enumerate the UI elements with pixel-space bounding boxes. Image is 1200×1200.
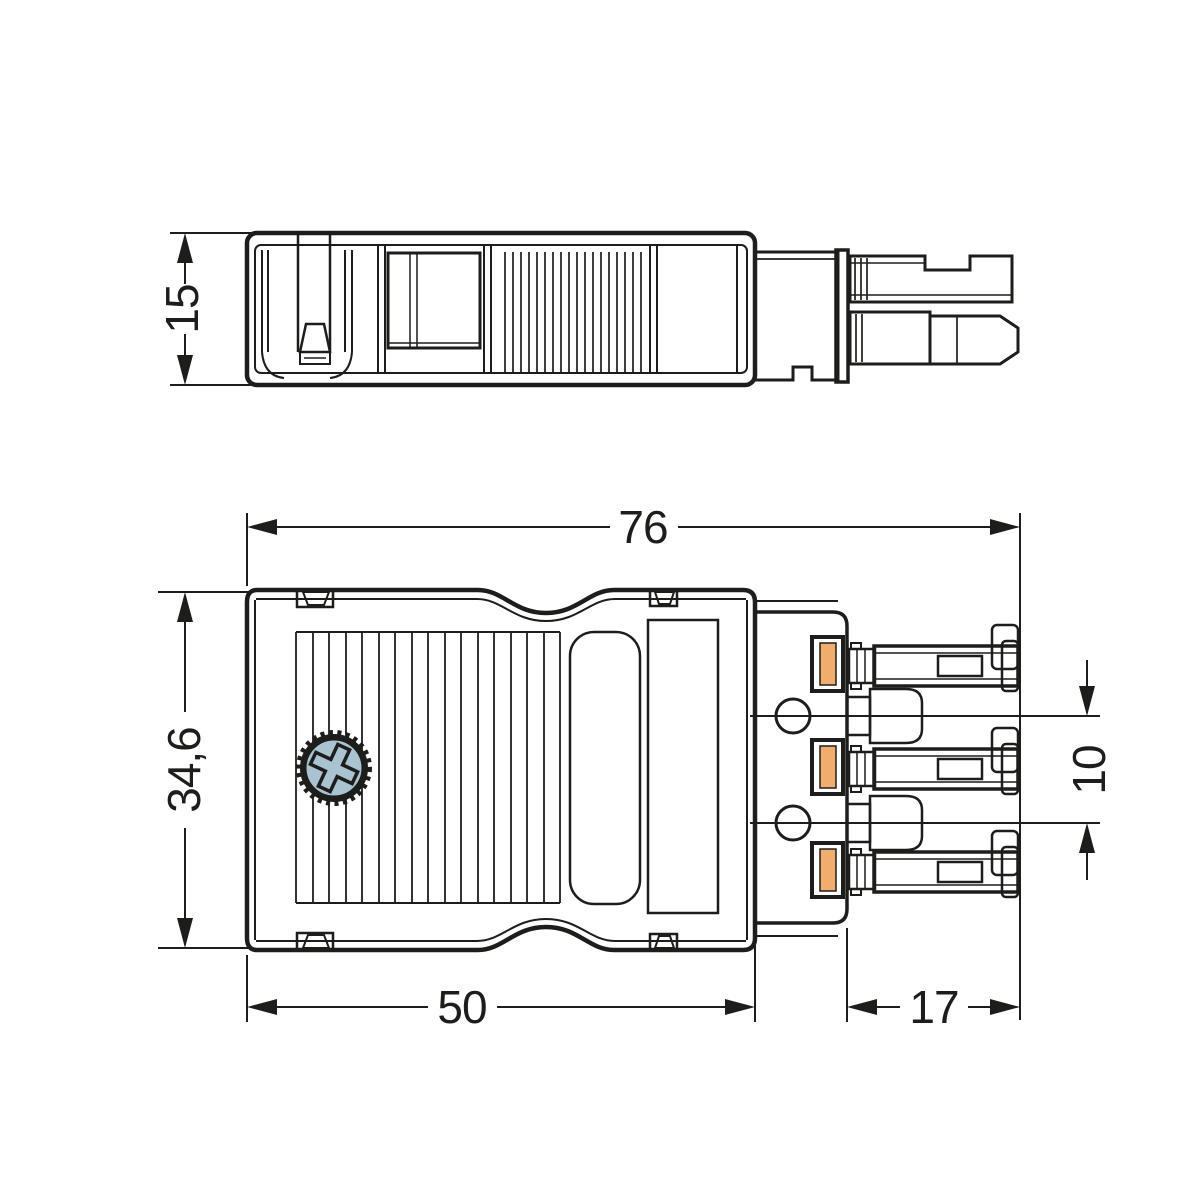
- dimension-label-15: 15: [156, 284, 208, 333]
- dimension-label-34-6: 34,6: [158, 727, 210, 813]
- dimension-label-17: 17: [909, 981, 958, 1033]
- connector-dimensional-drawing: 15: [0, 0, 1200, 1200]
- technical-drawing-page: 15: [0, 0, 1200, 1200]
- dimension-label-50: 50: [437, 981, 486, 1033]
- dimension-label-10: 10: [1063, 745, 1115, 794]
- dimension-label-76: 76: [618, 501, 667, 553]
- terminal-opening-2: [820, 746, 836, 788]
- terminal-opening-3: [820, 849, 836, 891]
- terminal-opening-1: [820, 643, 836, 685]
